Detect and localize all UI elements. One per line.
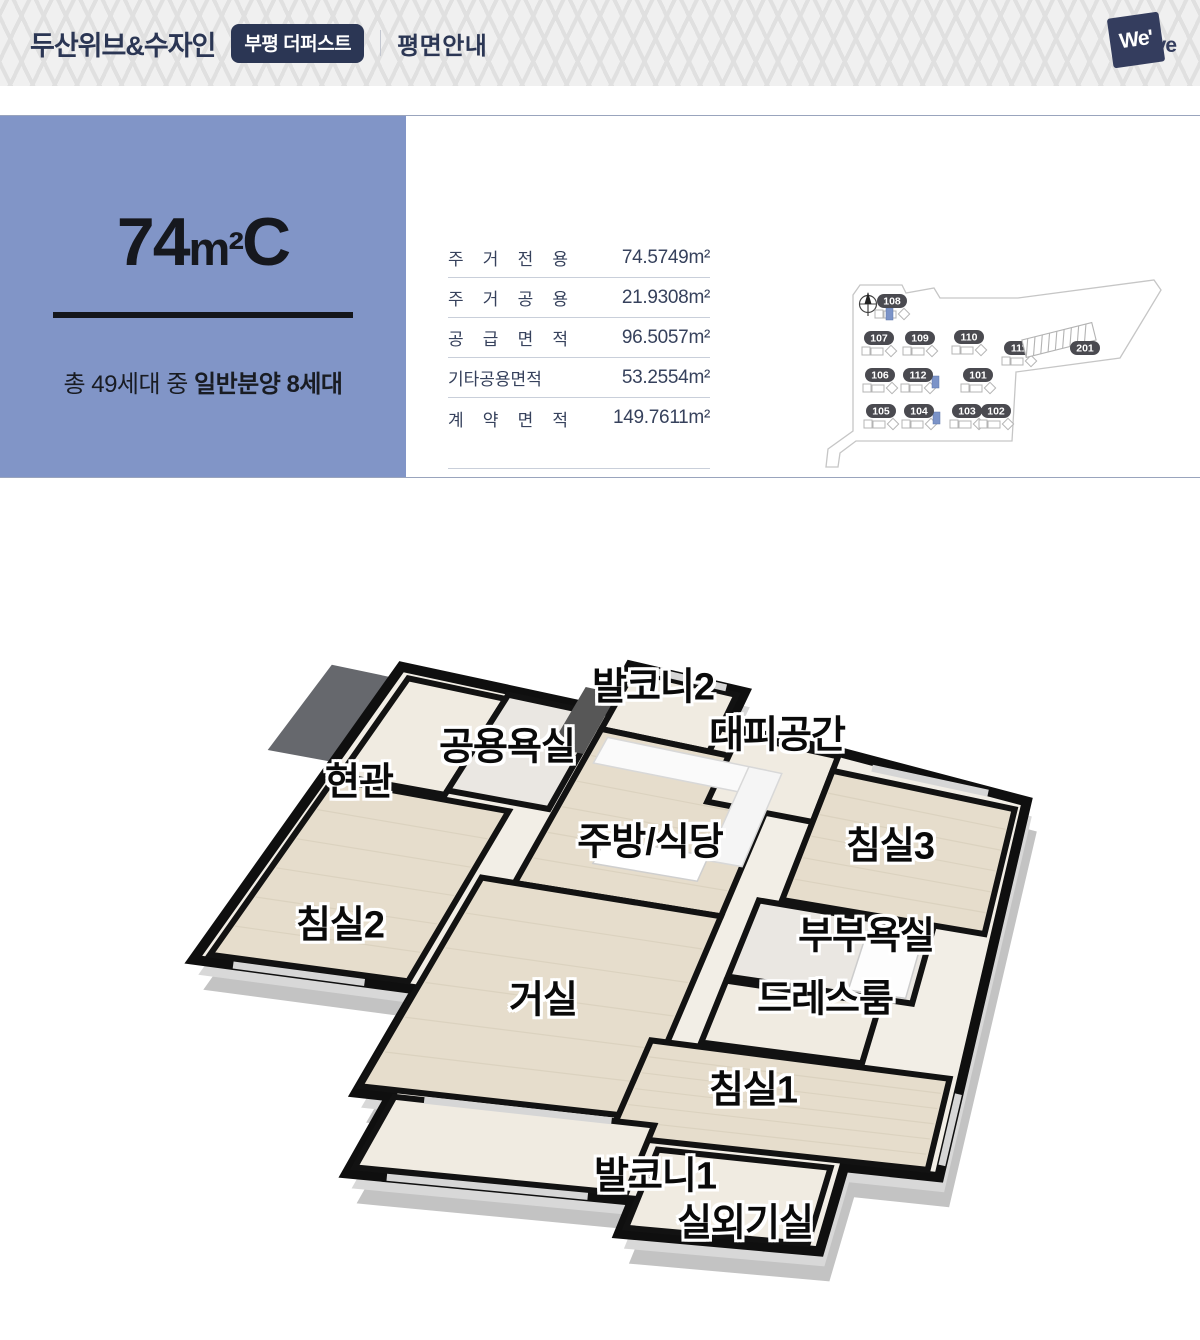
unit-size: 74 (117, 204, 189, 280)
building-number: 104 (910, 406, 928, 418)
table-row: 주 거 전 용 74.5749m² (448, 238, 710, 278)
building-number: 105 (872, 406, 890, 418)
divider-rule (53, 312, 353, 318)
toilet-fixture (518, 747, 532, 757)
building-number: 103 (958, 406, 976, 418)
table-end-rule (448, 468, 710, 469)
unit-supply-note-bold: 일반분양 8세대 (194, 371, 343, 398)
highlighted-unit-marker (933, 412, 940, 424)
area-label: 기타공용면적 (448, 365, 568, 390)
highlighted-unit-marker (886, 308, 893, 320)
area-value: 53.2554m² (622, 367, 710, 389)
unit-type-panel: 74m²C 총 49세대 중 일반분양 8세대 (0, 116, 406, 477)
unit-info-band: 74m²C 총 49세대 중 일반분양 8세대 주 거 전 용 74.5749m… (0, 115, 1200, 478)
table-row: 주 거 공 용 21.9308m² (448, 278, 710, 318)
header-content: 두산위브&수자인 부평 더퍼스트 평면안내 We' ve (0, 0, 1200, 86)
area-value: 149.7611m² (613, 407, 710, 429)
room-floor-outdoor-unit (626, 1150, 831, 1245)
building-number: 107 (870, 333, 888, 345)
weve-logo-square: We' (1106, 12, 1164, 69)
weve-logo-boxed-text: We' (1118, 26, 1154, 54)
building-number: 106 (871, 370, 889, 382)
header-bar: 두산위브&수자인 부평 더퍼스트 평면안내 We' ve (0, 0, 1200, 86)
vertical-divider (380, 30, 381, 56)
highlighted-unit-marker (932, 376, 939, 388)
table-row: 공 급 면 적 96.5057m² (448, 318, 710, 358)
building-number: 102 (987, 406, 1005, 418)
building-number: 101 (969, 370, 987, 382)
building-number: 112 (910, 370, 927, 382)
building-number: 108 (883, 296, 901, 308)
area-value: 21.9308m² (622, 287, 710, 309)
area-label: 공 급 면 적 (448, 325, 568, 350)
brand-title: 두산위브&수자인 (30, 24, 215, 63)
area-label: 주 거 전 용 (448, 245, 568, 270)
unit-supply-note-prefix: 총 49세대 중 (63, 371, 194, 398)
project-badge: 부평 더퍼스트 (231, 24, 364, 63)
site-location-map: 108107109110111201106112101105104103102 (818, 262, 1200, 476)
area-table: 주 거 전 용 74.5749m² 주 거 공 용 21.9308m² 공 급 … (448, 238, 710, 469)
table-row: 계 약 면 적 149.7611m² (448, 398, 710, 438)
building-number: 201 (1076, 343, 1094, 355)
weve-logo: We' ve (1110, 15, 1176, 65)
unit-supply-note: 총 49세대 중 일반분양 8세대 (0, 364, 406, 399)
unit-type-letter: C (242, 204, 289, 280)
area-value: 96.5057m² (622, 327, 710, 349)
unit-size-unit: m² (189, 222, 242, 275)
building-number: 109 (911, 333, 929, 345)
floor-plan-rendering (0, 480, 1200, 1340)
table-row: 기타공용면적 53.2554m² (448, 358, 710, 398)
page: 두산위브&수자인 부평 더퍼스트 평면안내 We' ve 74m²C 총 49세… (0, 0, 1200, 1340)
building-number: 110 (961, 332, 978, 344)
area-value: 74.5749m² (622, 247, 710, 269)
area-label: 주 거 공 용 (448, 285, 568, 310)
area-label: 계 약 면 적 (448, 406, 568, 431)
page-title: 평면안내 (397, 26, 487, 61)
unit-type-name: 74m²C (0, 208, 406, 276)
